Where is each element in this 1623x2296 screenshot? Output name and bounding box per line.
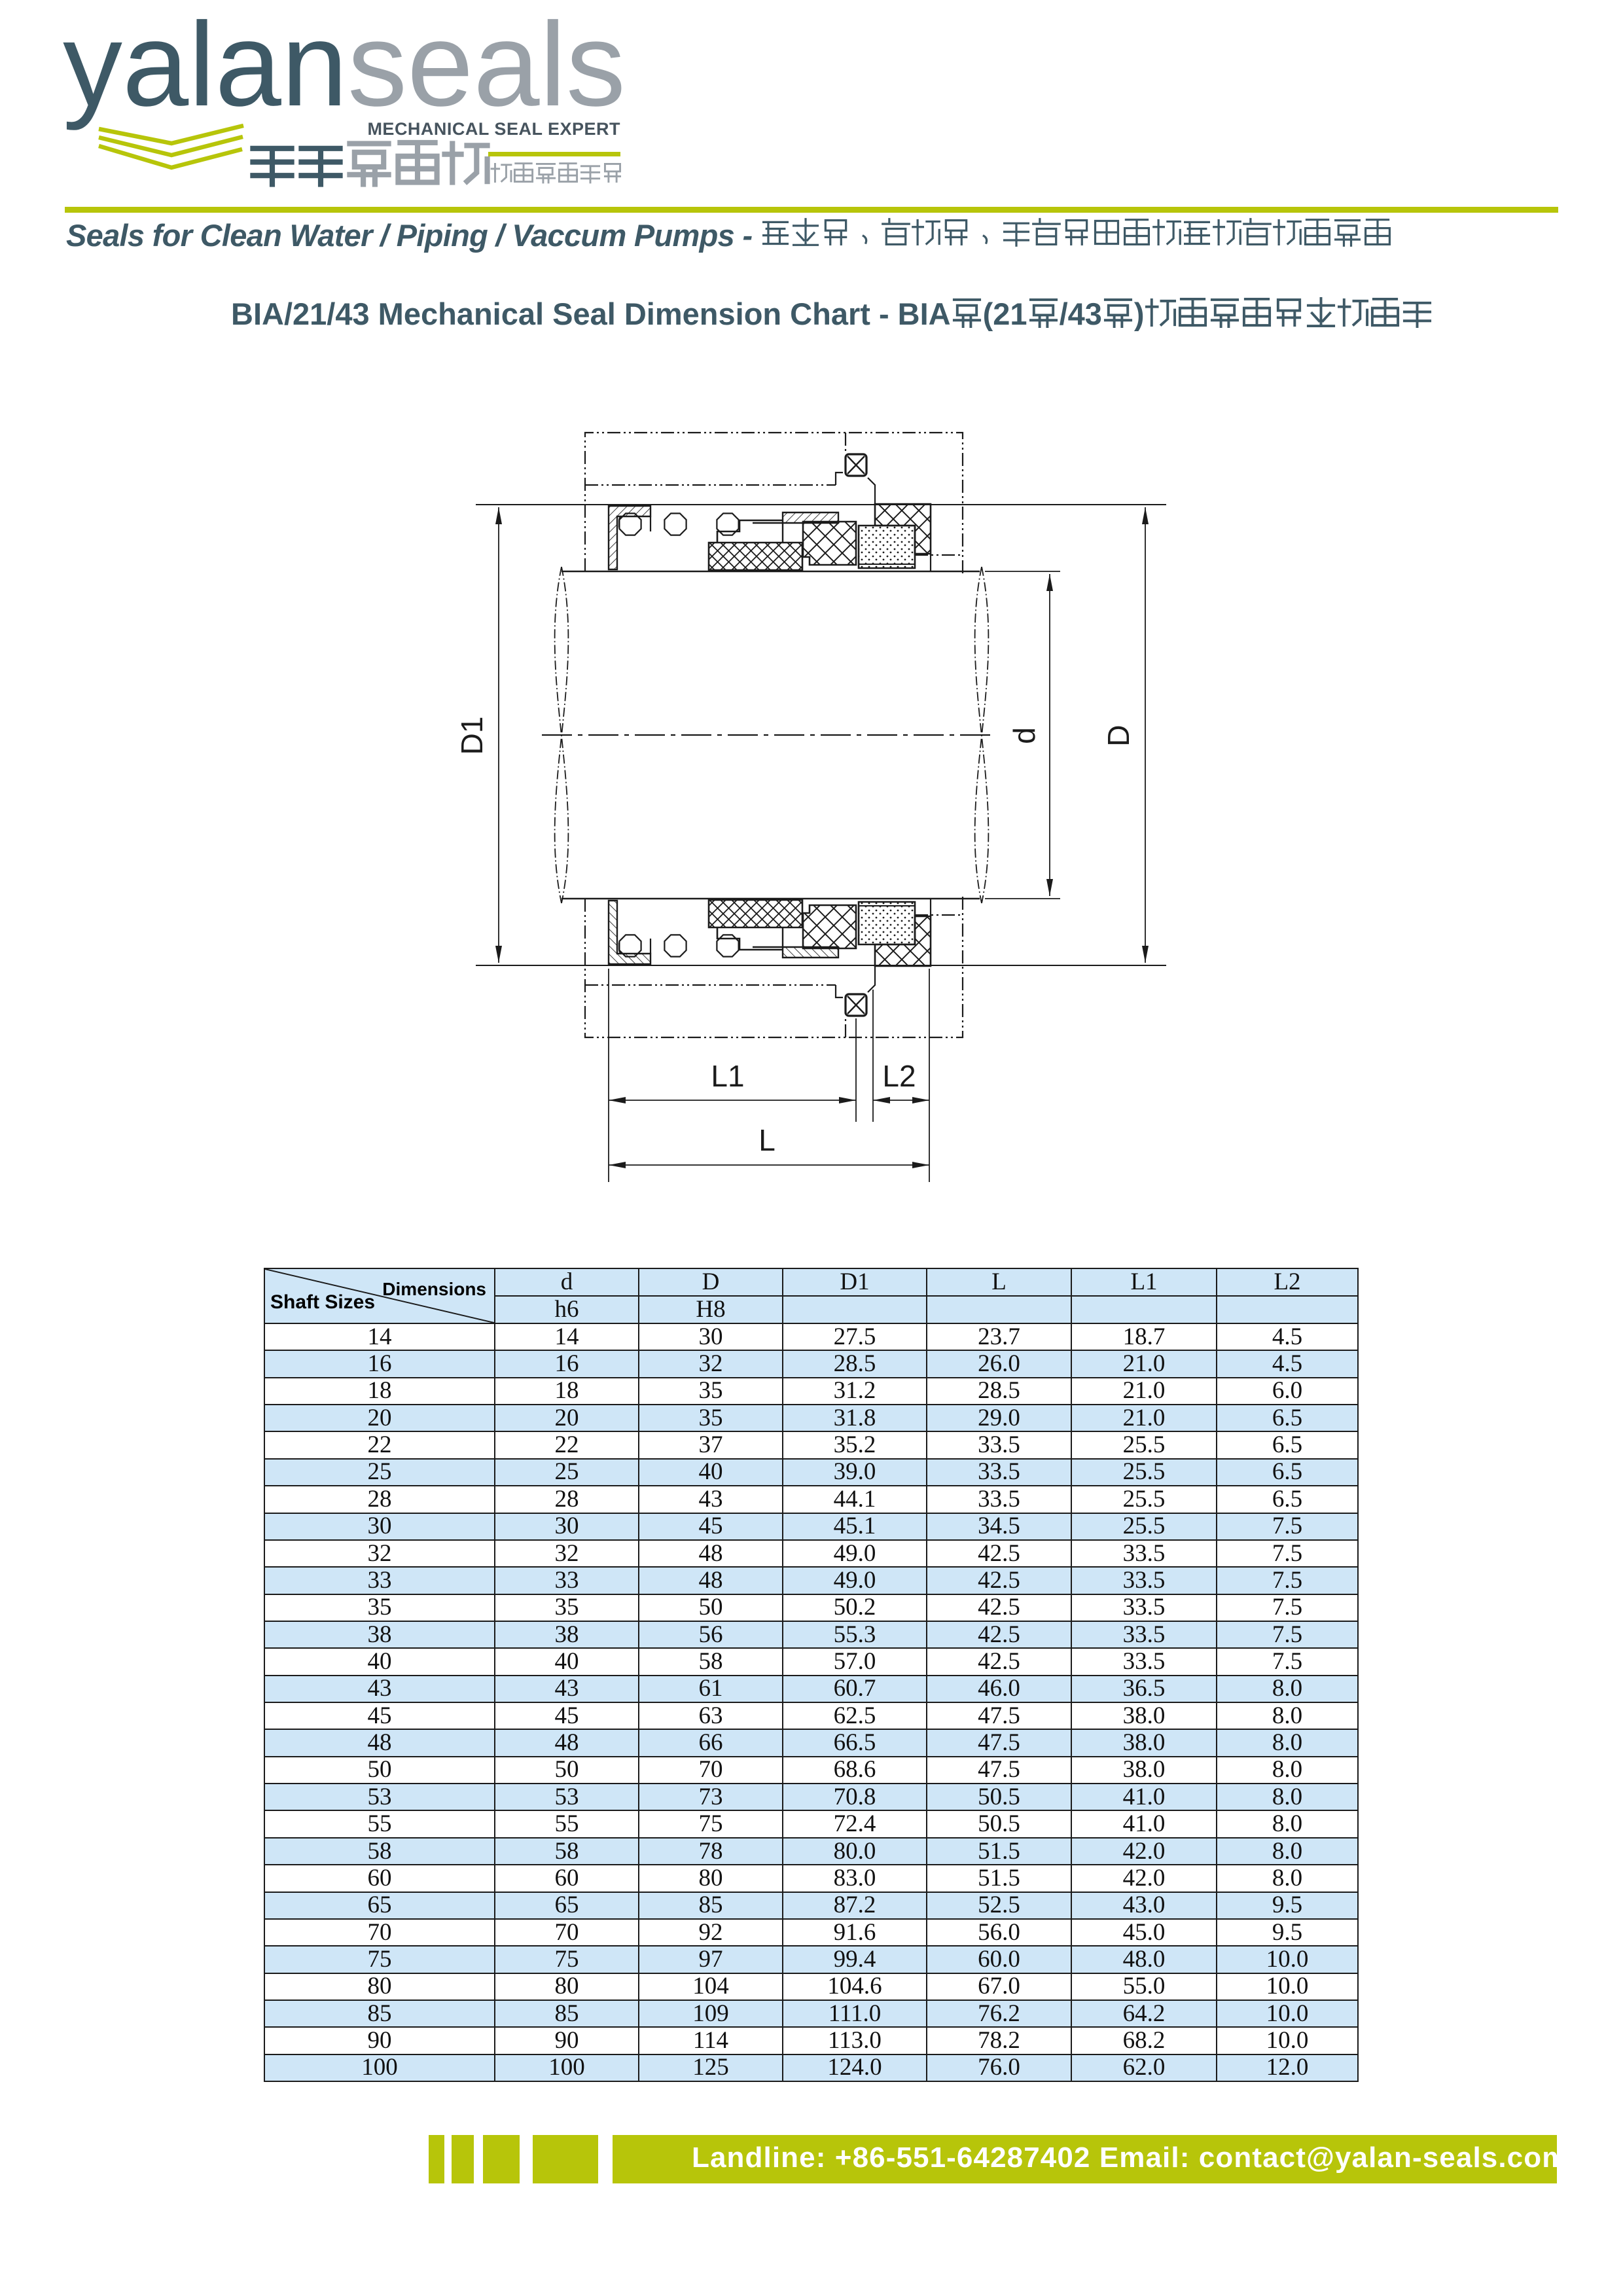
svg-text:D1: D1 [455, 717, 489, 755]
svg-text:L: L [758, 1123, 776, 1157]
svg-text:D: D [1101, 725, 1135, 746]
svg-text:d: d [1007, 727, 1041, 744]
svg-text:L1: L1 [711, 1059, 744, 1093]
svg-text:L2: L2 [882, 1059, 916, 1093]
